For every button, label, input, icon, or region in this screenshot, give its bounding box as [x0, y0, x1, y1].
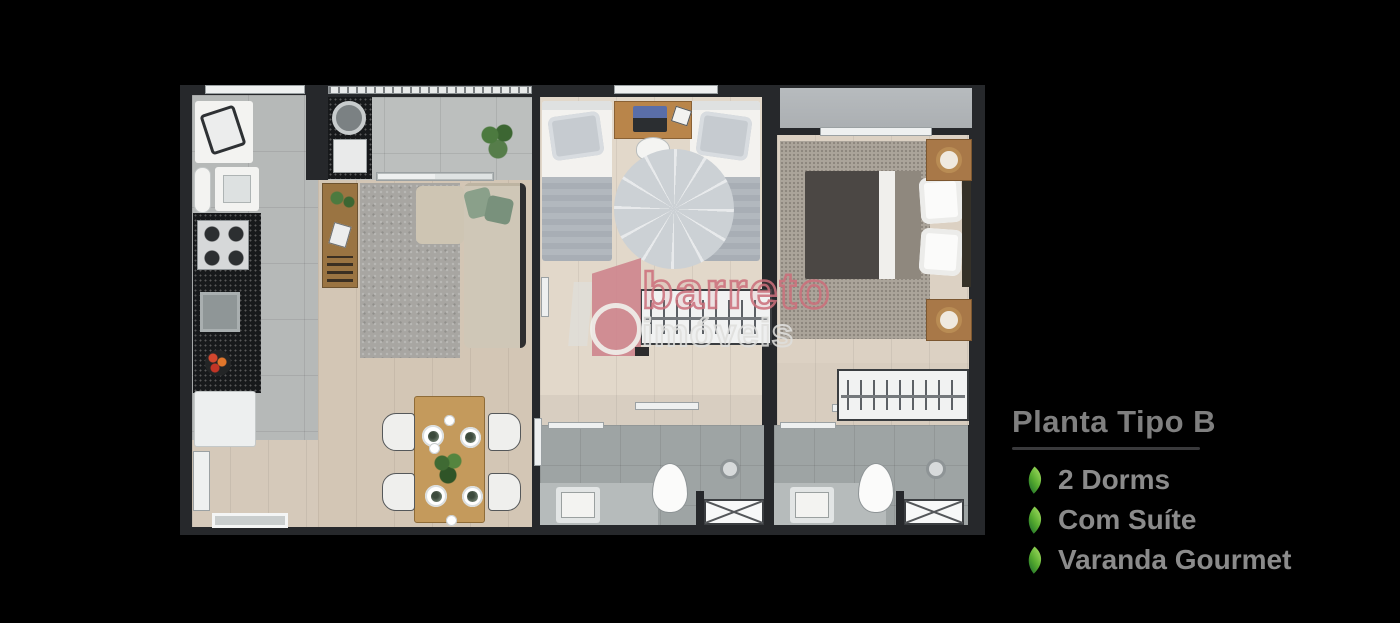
desk	[614, 101, 692, 139]
feature-item: 2 Dorms	[1026, 460, 1392, 500]
cup-3	[446, 515, 457, 526]
info-panel: Planta Tipo B 2 Dorms Com Suíte Varanda …	[1012, 404, 1392, 580]
notebook	[671, 106, 692, 126]
suite-wardrobe	[837, 369, 969, 421]
bathroom2-door	[780, 422, 836, 429]
washer-lid	[199, 104, 246, 155]
flower-bowl	[205, 350, 231, 376]
hall-entry-door	[534, 418, 542, 466]
wine-rack	[327, 256, 353, 282]
plate-2	[460, 427, 481, 448]
wall-kitchen-balcony	[306, 95, 328, 180]
bath2-shower-head	[926, 459, 946, 479]
laptop	[633, 106, 667, 132]
bath2-shower-wall	[896, 491, 904, 525]
bed-twin-left	[542, 101, 612, 261]
bath1-shower-head	[720, 459, 740, 479]
feature-list: 2 Dorms Com Suíte Varanda Gourmet	[1026, 460, 1392, 580]
nightstand-top	[926, 139, 972, 181]
bedroom1-window	[614, 85, 718, 94]
bathroom1-door	[548, 422, 604, 429]
kitchen-sink	[215, 167, 259, 211]
balcony-appliance	[333, 139, 367, 173]
sink-basin	[223, 175, 251, 203]
feature-label: Com Suíte	[1058, 504, 1196, 536]
bedroom1-door	[541, 277, 549, 317]
logo-bar-icon	[568, 282, 593, 346]
suite-headboard	[962, 169, 971, 287]
suite-pillow-2	[918, 228, 963, 277]
leaf-icon	[1025, 545, 1046, 575]
washing-machine	[195, 101, 253, 163]
plan-title: Planta Tipo B	[1012, 404, 1392, 440]
brand-subname: imóveis	[642, 314, 832, 353]
suite-bed-throw	[895, 171, 921, 279]
lamp-icon	[936, 307, 962, 333]
dining-chair-3	[488, 413, 521, 451]
fridge	[194, 391, 256, 447]
feature-label: Varanda Gourmet	[1058, 544, 1291, 576]
console-book	[328, 222, 351, 248]
console-sideboard	[322, 183, 358, 288]
balcony-railing	[328, 86, 532, 94]
dining-chair-1	[382, 413, 415, 451]
plate-3	[425, 485, 447, 507]
round-rug	[614, 149, 734, 269]
entry-door	[212, 513, 288, 528]
sofa-pillow-2	[484, 195, 515, 226]
dining-chair-4	[488, 473, 521, 511]
feature-item: Varanda Gourmet	[1026, 540, 1392, 580]
ironing-board	[194, 167, 211, 213]
feature-item: Com Suíte	[1026, 500, 1392, 540]
brand-name: barreto	[642, 265, 832, 316]
bath2-sink	[790, 487, 834, 523]
plate-4	[462, 486, 483, 507]
terrace-floor	[780, 88, 972, 128]
suite-window	[820, 127, 932, 136]
watermark-text: barreto imóveis	[642, 265, 832, 353]
nightstand-bottom	[926, 299, 972, 341]
leaf-icon	[1025, 505, 1046, 535]
table-centerpiece-plant	[430, 449, 468, 487]
lamp-icon	[936, 147, 962, 173]
suite-pillow-1	[918, 176, 963, 225]
feature-label: 2 Dorms	[1058, 464, 1170, 496]
title-underline	[1012, 447, 1200, 450]
stove-cooktop	[197, 220, 249, 270]
bath1-sink	[556, 487, 600, 523]
hallway-floor	[540, 395, 762, 425]
bath2-shower-drain	[904, 499, 964, 525]
bath1-shower-drain	[704, 499, 764, 525]
sofa-chaise	[416, 186, 464, 244]
balcony-plant	[478, 121, 520, 163]
kitchen-window	[205, 85, 305, 94]
dining-chair-2	[382, 473, 415, 511]
balcony-round-sink	[332, 101, 366, 135]
watermark: barreto imóveis	[563, 253, 893, 365]
hallway-door	[635, 402, 699, 410]
bath1-shower-wall	[696, 491, 704, 525]
screenshot-stage: barreto imóveis Planta Tipo B 2 Dorms Co…	[0, 0, 1400, 623]
service-door	[193, 451, 210, 511]
prep-sink	[200, 292, 240, 332]
cup-1	[444, 415, 455, 426]
balcony-sliding-door	[376, 172, 494, 181]
leaf-icon	[1025, 465, 1046, 495]
